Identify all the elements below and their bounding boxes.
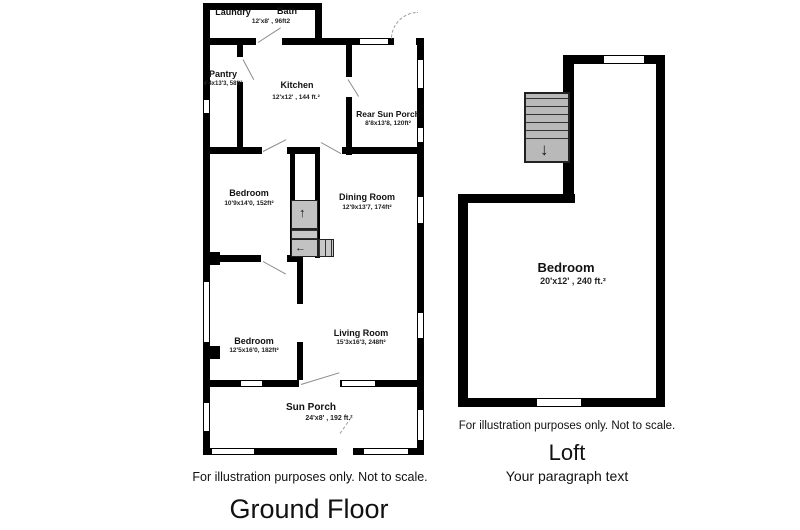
window xyxy=(417,128,424,142)
window xyxy=(417,60,424,88)
wall xyxy=(203,147,424,154)
door-opening xyxy=(394,38,416,45)
room-name: Rear Sun Porch xyxy=(356,110,420,119)
floor-title: Loft xyxy=(549,440,586,466)
wall xyxy=(297,262,303,304)
door-opening xyxy=(237,57,243,82)
room-name: Bedroom xyxy=(229,189,269,198)
window xyxy=(360,38,388,45)
window xyxy=(203,403,210,431)
window xyxy=(537,398,581,407)
room-name: Bedroom xyxy=(537,261,594,274)
window xyxy=(417,410,424,440)
wall-pilaster xyxy=(203,346,220,359)
window xyxy=(342,380,375,387)
wall xyxy=(458,194,575,203)
window xyxy=(241,380,262,387)
window xyxy=(604,55,644,64)
room-name: Pantry xyxy=(209,70,237,79)
wall-pilaster xyxy=(203,252,220,265)
room-dims: 10'9x14'0, 152ft² xyxy=(224,201,273,208)
left-arrow-icon: ← xyxy=(295,243,306,254)
paragraph-text: Your paragraph text xyxy=(506,468,628,484)
down-arrow-icon: ↓ xyxy=(540,141,549,158)
wall xyxy=(458,194,468,407)
window xyxy=(417,197,424,223)
room-dims: 4'4x13'3, 58ft² xyxy=(204,81,243,87)
room-dims: 24'x8' , 192 ft.² xyxy=(305,415,352,422)
door-swing xyxy=(243,59,255,80)
door-opening xyxy=(261,255,287,262)
room-name: Bedroom xyxy=(234,337,274,346)
up-arrow-icon: ↑ xyxy=(299,206,306,219)
window xyxy=(364,448,408,455)
room-name: Laundry xyxy=(215,8,251,17)
staircase-treads xyxy=(526,98,568,140)
room-name: Living Room xyxy=(334,329,389,338)
room-dims: 15'3x16'3, 248ft² xyxy=(336,340,385,347)
disclaimer: For illustration purposes only. Not to s… xyxy=(459,420,675,432)
window xyxy=(417,313,424,338)
room-dims: 20'x12' , 240 ft.² xyxy=(540,277,606,286)
room-dims: 12'x8' , 96ft2 xyxy=(252,19,290,26)
room-dims: 12'5x16'0, 182ft² xyxy=(229,348,278,355)
room-dims: 12'x12' , 144 ft.² xyxy=(272,95,320,102)
room-name: Dining Room xyxy=(339,193,395,202)
room-name: Sun Porch xyxy=(286,403,336,413)
window xyxy=(203,100,210,113)
room-name: Bath xyxy=(277,7,297,16)
wall xyxy=(346,45,352,155)
disclaimer: For illustration purposes only. Not to s… xyxy=(192,470,427,484)
door-swing xyxy=(263,261,286,274)
window xyxy=(212,448,254,455)
room-dims: 12'9x13'7, 174ft² xyxy=(342,205,391,212)
door-swing-arc xyxy=(391,12,418,39)
floor-title: Ground Floor xyxy=(229,494,388,525)
floor-plan-canvas: ↑ ← Laundry Bath 12'x8' , 96ft2 Pantry 4… xyxy=(0,0,800,530)
staircase-treads xyxy=(318,239,334,257)
window xyxy=(203,282,210,342)
wall xyxy=(417,38,424,455)
door-opening xyxy=(337,448,353,455)
wall xyxy=(297,342,303,383)
room-name: Kitchen xyxy=(280,81,313,90)
wall xyxy=(656,55,665,407)
room-dims: 8'8x13'8, 120ft² xyxy=(365,121,411,128)
wall xyxy=(203,38,424,45)
